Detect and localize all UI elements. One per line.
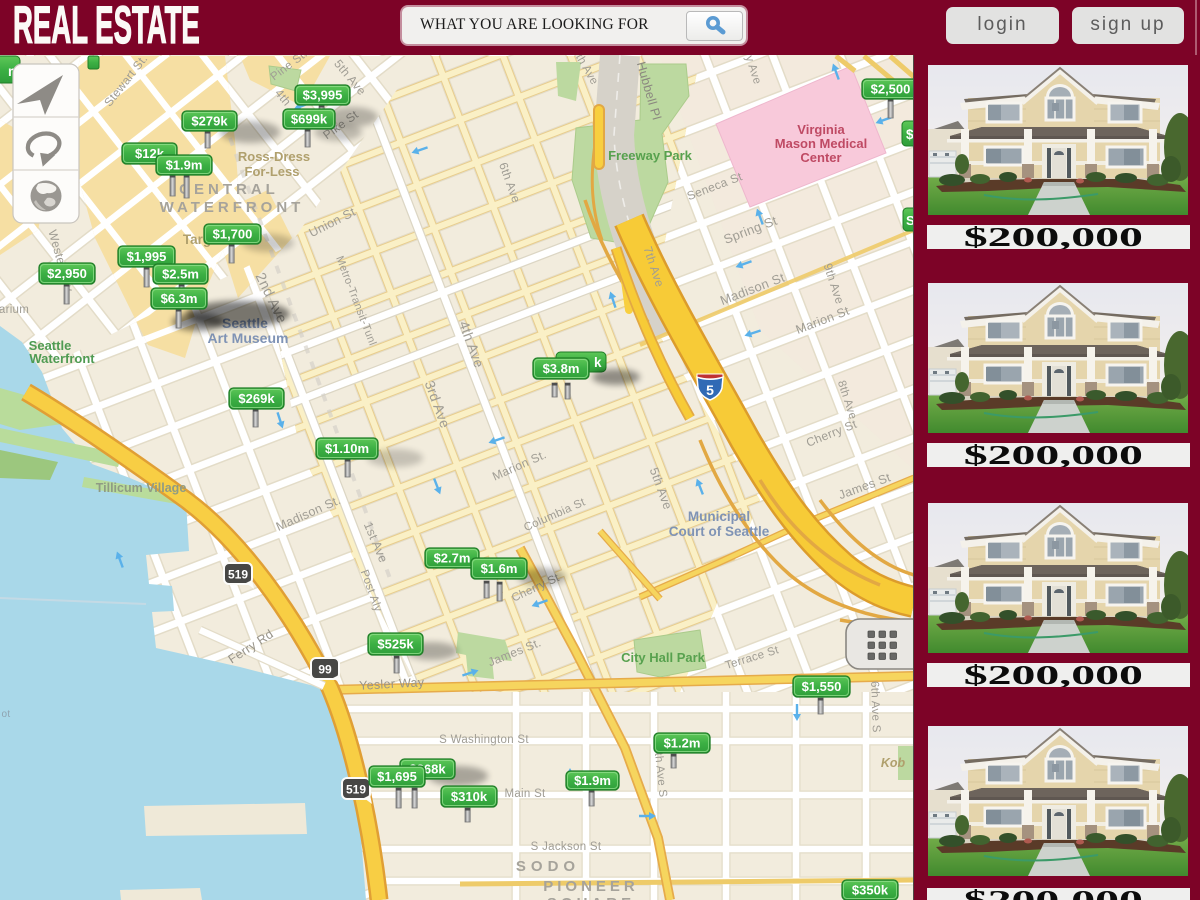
svg-text:$1.6m: $1.6m [481, 561, 518, 576]
svg-text:519: 519 [228, 568, 248, 582]
svg-text:519: 519 [346, 783, 366, 797]
svg-text:S Jackson St: S Jackson St [531, 841, 602, 853]
svg-text:$699k: $699k [291, 112, 328, 127]
svg-text:$525k: $525k [377, 637, 414, 652]
svg-text:Main St: Main St [504, 788, 546, 800]
svg-text:$310k: $310k [451, 789, 488, 804]
svg-text:$6.3m: $6.3m [161, 291, 198, 306]
svg-text:99: 99 [318, 663, 332, 677]
svg-text:Virginia: Virginia [797, 122, 845, 137]
svg-text:Ross-Dress: Ross-Dress [238, 149, 310, 164]
svg-text:$1.2m: $1.2m [664, 736, 701, 751]
svg-text:Kob: Kob [881, 756, 906, 770]
svg-text:Tillicum Village: Tillicum Village [96, 481, 187, 495]
svg-text:arium: arium [0, 304, 29, 316]
svg-text:$3.8m: $3.8m [543, 361, 580, 376]
svg-text:CENTRAL: CENTRAL [179, 181, 279, 198]
svg-text:City Hall Park: City Hall Park [621, 650, 706, 665]
svg-text:$2.7m: $2.7m [434, 551, 471, 566]
svg-text:$1.9m: $1.9m [166, 158, 203, 173]
svg-text:PIONEER: PIONEER [543, 878, 639, 895]
svg-text:$1,700: $1,700 [213, 227, 253, 242]
svg-text:$279k: $279k [191, 114, 228, 129]
svg-text:Freeway Park: Freeway Park [608, 148, 693, 163]
svg-text:$2,500: $2,500 [871, 82, 911, 97]
svg-text:Court of Seattle: Court of Seattle [669, 524, 770, 539]
svg-text:5: 5 [706, 382, 714, 398]
svg-text:$1,550: $1,550 [802, 679, 842, 694]
svg-text:Waterfront: Waterfront [29, 351, 95, 366]
svg-text:ot: ot [2, 709, 11, 720]
svg-text:$2.5m: $2.5m [162, 267, 199, 282]
svg-text:S Washington St: S Washington St [439, 734, 529, 746]
svg-text:Municipal: Municipal [688, 509, 750, 524]
svg-text:$3,995: $3,995 [303, 88, 343, 103]
svg-text:$1,995: $1,995 [127, 249, 167, 264]
svg-text:SODO: SODO [516, 858, 580, 875]
svg-text:$269k: $269k [238, 391, 275, 406]
svg-text:$1,695: $1,695 [377, 769, 417, 784]
svg-text:SQUARE: SQUARE [547, 895, 635, 900]
svg-text:Mason Medical: Mason Medical [775, 136, 867, 151]
svg-text:$1.9m: $1.9m [574, 773, 611, 788]
svg-text:k: k [594, 355, 602, 370]
svg-text:$2,950: $2,950 [47, 266, 87, 281]
svg-text:$1.10m: $1.10m [325, 441, 369, 456]
svg-text:WATERFRONT: WATERFRONT [160, 199, 305, 216]
svg-text:For-Less: For-Less [245, 164, 300, 179]
svg-text:$350k: $350k [852, 883, 889, 898]
svg-text:Center: Center [800, 150, 841, 165]
svg-text:Art Museum: Art Museum [208, 330, 289, 346]
svg-text:6th Ave S: 6th Ave S [868, 681, 882, 733]
